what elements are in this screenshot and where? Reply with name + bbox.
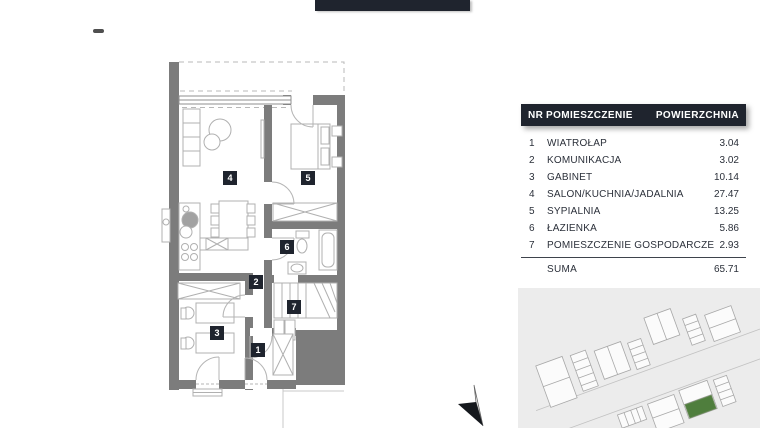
header-nr: NR <box>528 110 546 121</box>
row-room: GABINET <box>547 172 714 183</box>
row-nr: 5 <box>529 206 547 217</box>
row-room: SALON/KUCHNIA/JADALNIA <box>547 189 714 200</box>
table-row: 4 SALON/KUCHNIA/JADALNIA 27.47 <box>521 186 746 203</box>
room-area-table: NR POMIESZCZENIE POWIERZCHNIA 1 WIATROŁA… <box>521 104 746 281</box>
table-rows: 1 WIATROŁAP 3.04 2 KOMUNIKACJA 3.02 3 GA… <box>521 126 746 254</box>
row-room: POMIESZCZENIE GOSPODARCZE <box>547 240 720 251</box>
room-label-2: 2 <box>249 275 263 289</box>
table-header: NR POMIESZCZENIE POWIERZCHNIA <box>521 104 746 126</box>
table-row: 3 GABINET 10.14 <box>521 169 746 186</box>
table-total-row: SUMA 65.71 <box>521 258 746 281</box>
north-arrow-icon <box>458 385 483 426</box>
row-area: 13.25 <box>714 206 739 217</box>
terrace <box>296 330 345 385</box>
row-area: 2.93 <box>720 240 739 251</box>
room-label-7: 7 <box>287 300 301 314</box>
header-room: POMIESZCZENIE <box>546 110 656 121</box>
row-area: 3.02 <box>720 155 739 166</box>
row-room: SYPIALNIA <box>547 206 714 217</box>
row-nr: 6 <box>529 223 547 234</box>
row-nr: 2 <box>529 155 547 166</box>
row-nr: 4 <box>529 189 547 200</box>
row-area: 3.04 <box>720 138 739 149</box>
row-room: WIATROŁAP <box>547 138 720 149</box>
room-label-3: 3 <box>210 326 224 340</box>
row-room: KOMUNIKACJA <box>547 155 720 166</box>
room-label-1: 1 <box>251 343 265 357</box>
plot-boundary-lines <box>283 389 344 428</box>
table-row: 5 SYPIALNIA 13.25 <box>521 203 746 220</box>
row-nr: 3 <box>529 172 547 183</box>
header-area: POWIERZCHNIA <box>656 110 739 121</box>
room-label-5: 5 <box>301 171 315 185</box>
table-row: 7 POMIESZCZENIE GOSPODARCZE 2.93 <box>521 237 746 254</box>
room-label-6: 6 <box>280 240 294 254</box>
total-label: SUMA <box>547 264 714 275</box>
room-label-4: 4 <box>223 171 237 185</box>
window-band <box>179 96 291 104</box>
table-row: 1 WIATROŁAP 3.04 <box>521 135 746 152</box>
table-row: 6 ŁAZIENKA 5.86 <box>521 220 746 237</box>
total-value: 65.71 <box>714 264 739 275</box>
row-area: 10.14 <box>714 172 739 183</box>
row-room: ŁAZIENKA <box>547 223 720 234</box>
row-area: 27.47 <box>714 189 739 200</box>
stairs <box>274 283 337 318</box>
row-area: 5.86 <box>720 223 739 234</box>
row-nr: 7 <box>529 240 547 251</box>
site-plan <box>518 278 760 428</box>
table-row: 2 KOMUNIKACJA 3.02 <box>521 152 746 169</box>
row-nr: 1 <box>529 138 547 149</box>
